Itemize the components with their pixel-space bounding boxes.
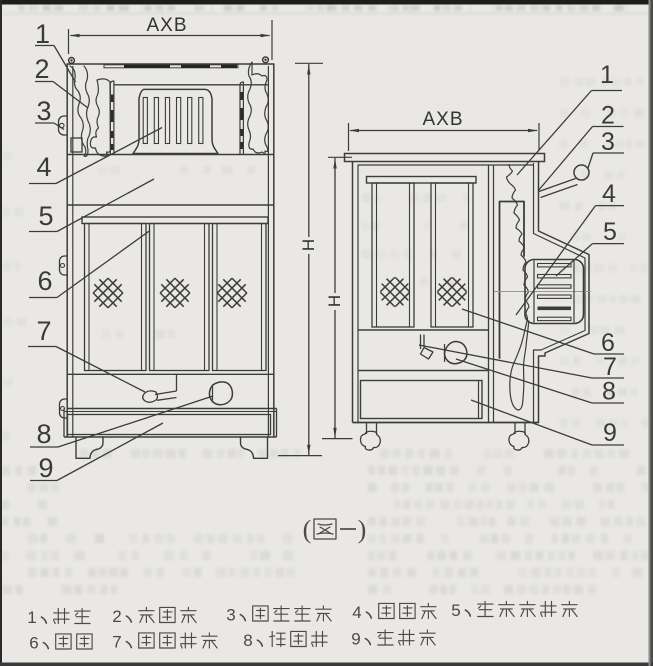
svg-text:6: 6 [29, 634, 38, 653]
svg-text:4: 4 [352, 603, 361, 622]
svg-text:1: 1 [27, 608, 36, 627]
svg-text:3: 3 [226, 606, 235, 625]
svg-text:4: 4 [602, 180, 616, 208]
svg-text:5: 5 [603, 218, 617, 246]
svg-text:1: 1 [35, 19, 50, 49]
svg-text:9: 9 [351, 630, 360, 649]
svg-text:5: 5 [38, 201, 53, 231]
svg-text:2: 2 [34, 54, 49, 84]
svg-text:H: H [325, 295, 344, 307]
svg-text:9: 9 [603, 419, 617, 447]
svg-text:5: 5 [451, 601, 460, 620]
svg-text:4: 4 [36, 152, 51, 182]
svg-text:AXB: AXB [422, 109, 463, 130]
svg-text:1: 1 [600, 61, 614, 89]
svg-text:7: 7 [36, 316, 51, 346]
svg-text:): ) [358, 515, 367, 544]
svg-text:8: 8 [36, 419, 51, 449]
svg-text:8: 8 [243, 631, 252, 650]
svg-text:8: 8 [602, 378, 616, 406]
svg-text:9: 9 [38, 453, 53, 483]
svg-text:2: 2 [601, 102, 615, 130]
svg-text:2: 2 [112, 607, 121, 626]
svg-text:H: H [299, 239, 318, 251]
svg-text:3: 3 [601, 128, 615, 156]
svg-text:AXB: AXB [146, 15, 187, 36]
svg-text:7: 7 [112, 633, 121, 652]
svg-text:3: 3 [36, 96, 51, 126]
svg-text:6: 6 [37, 266, 52, 296]
svg-text:(: ( [303, 515, 312, 544]
